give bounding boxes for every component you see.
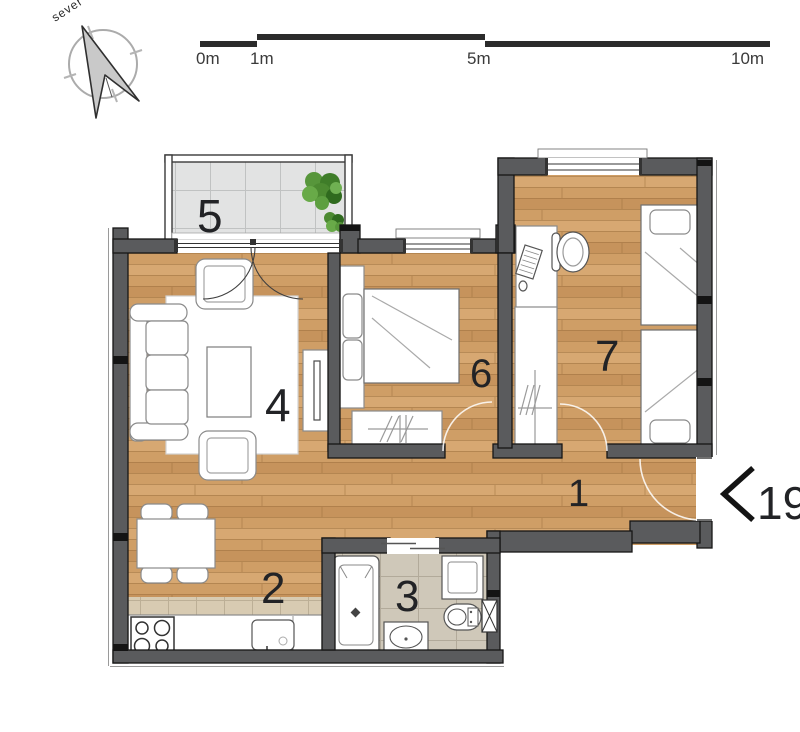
scale-bar-segments (200, 34, 770, 47)
stove-icon (131, 617, 174, 654)
pillow (343, 294, 362, 338)
bedroom7-window (538, 149, 647, 175)
compass-label: sever (49, 0, 85, 25)
floor-plan-page: sever 0m 1m 5m 10m (0, 0, 800, 732)
dresser (352, 411, 442, 447)
coffee-table (207, 347, 251, 417)
washing-machine-icon (442, 556, 483, 599)
room-label-bedroom7: 7 (595, 332, 619, 381)
bathroom-sliding-door (381, 538, 445, 554)
bedroom6-window (396, 229, 480, 253)
armchair (196, 259, 253, 309)
dining-table (137, 519, 215, 568)
scale-tick-1m: 1m (250, 49, 274, 68)
scale-bar: 0m 1m 5m 10m (196, 34, 770, 68)
entrance-opening (696, 457, 713, 521)
toilet-icon (444, 604, 481, 630)
tv-icon (314, 361, 320, 420)
sofa (130, 304, 188, 441)
bedroom6-furniture (340, 266, 459, 447)
kitchen-backsplash (128, 597, 322, 617)
armchair (199, 431, 256, 480)
bathtub-icon (333, 556, 379, 657)
room-label-bathroom: 3 (395, 572, 419, 621)
tv-stand (303, 350, 329, 431)
desk (516, 226, 557, 311)
floor-plan-canvas: sever 0m 1m 5m 10m (0, 0, 800, 732)
single-bed (641, 330, 703, 445)
pillow (650, 210, 690, 234)
scale-tick-10m: 10m (731, 49, 764, 68)
entrance-marker: 19 (724, 468, 800, 529)
room-label-bedroom6: 6 (470, 352, 492, 396)
office-chair (552, 232, 589, 272)
pillow (343, 340, 362, 380)
room-label-kitchen: 2 (261, 564, 285, 613)
wardrobe (515, 307, 557, 452)
room-label-terrace: 5 (197, 190, 223, 242)
north-arrow-icon (82, 26, 139, 118)
room-label-hallway: 1 (568, 473, 589, 515)
pillow (650, 420, 690, 443)
mouse-icon (519, 281, 527, 291)
entrance-unit-number: 19 (757, 477, 800, 529)
single-bed (641, 205, 703, 325)
scale-tick-0m: 0m (196, 49, 220, 68)
shaft (482, 600, 497, 632)
compass-rose: sever (49, 0, 142, 118)
room-label-living-room: 4 (265, 379, 291, 431)
scale-tick-5m: 5m (467, 49, 491, 68)
left-chevron-icon (724, 468, 753, 520)
